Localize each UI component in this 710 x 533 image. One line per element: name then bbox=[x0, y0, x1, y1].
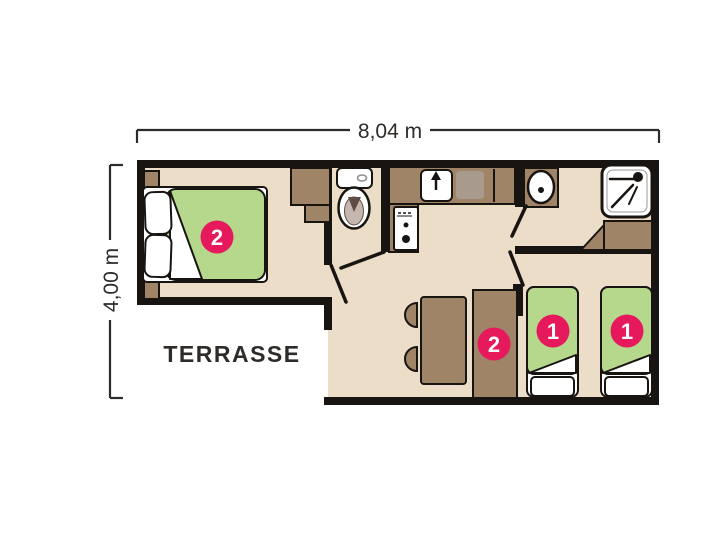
toilet-icon bbox=[337, 168, 372, 229]
dim-width-label: 8,04 m bbox=[358, 120, 422, 143]
dining-area: 2 bbox=[405, 290, 517, 398]
dimension-height: 4,00 m bbox=[100, 165, 123, 398]
nightstand-icon bbox=[144, 281, 159, 299]
badge-number: 1 bbox=[547, 319, 559, 344]
single-bed-icon: 1 bbox=[601, 287, 652, 397]
single-bed-icon: 1 bbox=[527, 287, 578, 397]
shower-head bbox=[633, 172, 643, 182]
wall-entry-notch bbox=[324, 297, 332, 330]
terrace-label: TERRASSE bbox=[163, 341, 300, 367]
stove-icon bbox=[394, 207, 418, 250]
badge-number: 2 bbox=[488, 332, 500, 357]
dimension-width: 8,04 m bbox=[137, 120, 659, 143]
burner-small bbox=[404, 223, 409, 228]
pillow-icon bbox=[605, 377, 648, 396]
wardrobe-icon bbox=[305, 205, 330, 222]
burner-large bbox=[402, 235, 410, 243]
pillow-icon bbox=[144, 192, 171, 235]
badge-master-bed: 2 bbox=[201, 221, 234, 254]
floor-plan: 2 bbox=[0, 0, 710, 533]
wall-washroom-left bbox=[515, 160, 523, 207]
dim-height-label: 4,00 m bbox=[100, 248, 123, 312]
badge-number: 2 bbox=[211, 225, 223, 250]
wall-toilet-right bbox=[381, 160, 389, 252]
bathroom-cabinet bbox=[604, 221, 652, 250]
pillow-icon bbox=[531, 377, 574, 396]
kitchen-sink-icon bbox=[421, 170, 452, 201]
shower-icon bbox=[602, 165, 652, 217]
washbasin-drain bbox=[538, 187, 544, 193]
wardrobe-icon bbox=[291, 168, 330, 205]
toilet-room bbox=[337, 168, 372, 229]
dining-table-icon bbox=[421, 297, 466, 384]
badge-storage-bunk: 2 bbox=[478, 328, 511, 361]
pillow-icon bbox=[144, 235, 171, 278]
wall-bedroom-bottom bbox=[137, 297, 332, 305]
badge-number: 1 bbox=[621, 319, 633, 344]
washbasin-icon bbox=[524, 168, 558, 207]
worktop-icon bbox=[456, 171, 484, 199]
toilet-flush-button bbox=[358, 175, 367, 181]
